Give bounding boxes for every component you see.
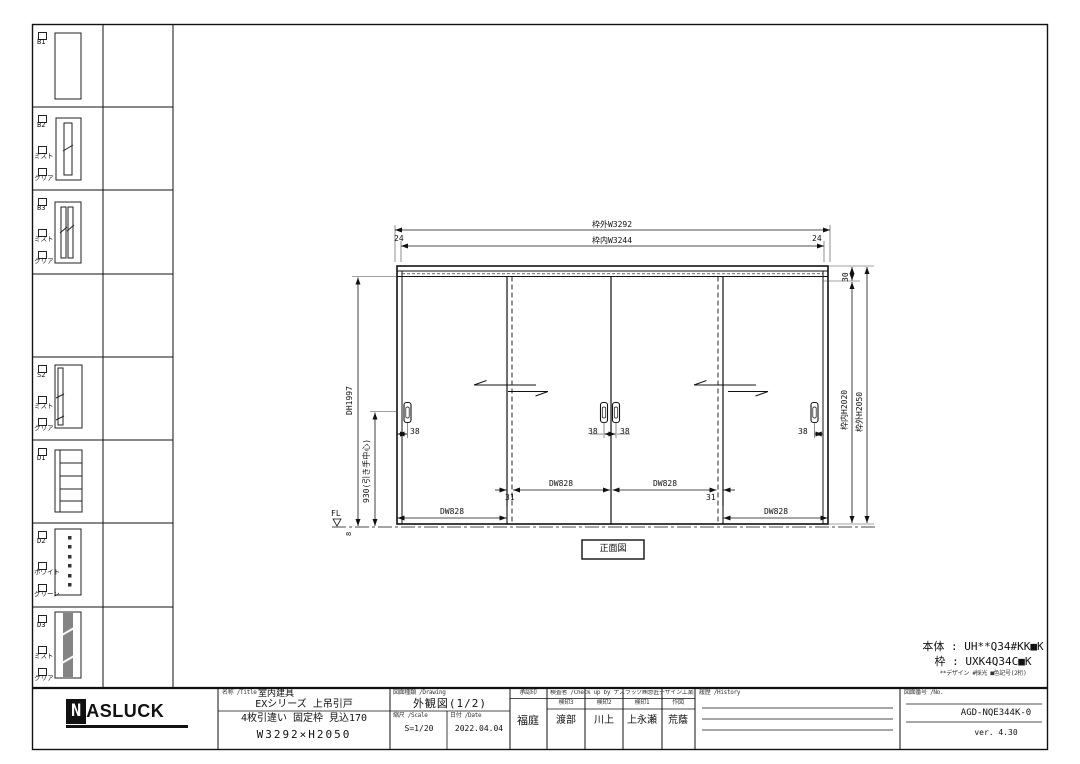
dim-jamb-right: 24: [812, 235, 822, 243]
check-header: 検査者 /Check up by ナスラック㈱意匠デザイン工業部: [550, 690, 694, 696]
drawing-type: 外観図(1/2): [413, 698, 487, 709]
stamp-header: 検印3: [559, 700, 574, 706]
dim-jamb-left: 24: [394, 235, 404, 243]
dim-handle-center-height: 930(引き手中心): [363, 439, 371, 503]
door-type-label-s2: S2: [37, 372, 45, 379]
door-elevation-frame: [397, 266, 828, 524]
dim-frame-outer-width: 枠外W3292: [592, 221, 632, 229]
dim-frame-inner-width: 枠内W3244: [592, 237, 632, 245]
product-size: W3292×H2050: [257, 729, 352, 740]
door-type-label-d1: D1: [37, 455, 45, 462]
view-label: 正面図: [599, 545, 626, 554]
checker-name: 上永瀬: [627, 716, 657, 726]
door-icon-b3: [55, 202, 81, 263]
option-label: クリア: [34, 258, 54, 265]
dim-door-width: DW828: [549, 480, 573, 488]
dim-handle-offset: 38: [798, 428, 808, 436]
dim-overlap: 31: [505, 494, 515, 502]
drawing-linework: [0, 0, 1080, 764]
floor-line: [332, 519, 878, 527]
door-type-icons: [55, 33, 82, 678]
dim-handle-offset: 38: [410, 428, 420, 436]
product-spec: 4枚引違い 固定枠 見込170: [241, 714, 367, 724]
door-icon-s2: [55, 365, 82, 428]
sheet-frame: [32, 24, 1048, 750]
dim-door-width: DW828: [440, 508, 464, 516]
door-icon-b1: [55, 33, 81, 99]
dim-frame-inner-height: 枠内H2020: [841, 390, 849, 430]
door-handle: [811, 403, 818, 423]
dim-frame-outer-height: 枠外H2050: [856, 392, 864, 432]
door-handle: [613, 403, 620, 423]
door-icon-b2: [56, 118, 81, 180]
door-type-label-b3: B3: [37, 205, 45, 212]
door-icon-d3: [55, 612, 81, 678]
scale-header: 縮尺 /Scale: [393, 713, 428, 719]
option-label: ミスト: [34, 153, 54, 160]
note-body-code: 本体 : UH**Q34#KK■K: [922, 641, 1043, 652]
nasluck-logo: NASLUCK: [66, 697, 188, 728]
dim-door-height: DH1997: [346, 386, 354, 415]
door-handle: [601, 403, 608, 423]
checker-name: 渡部: [556, 716, 576, 726]
door-panels: [507, 277, 723, 525]
option-label: ホワイト: [34, 569, 60, 576]
date-header: 日付 /Date: [450, 713, 481, 719]
note-legend: **デザイン #採光 ■色記号(2桁): [940, 671, 1027, 677]
option-label: クリア: [34, 675, 54, 682]
stamp-header: 作図: [672, 700, 683, 706]
dim-overlap: 31: [706, 494, 716, 502]
name-header: 名称 /Title: [222, 690, 257, 696]
stamp-header: 検印2: [597, 700, 612, 706]
dim-door-width: DW828: [764, 508, 788, 516]
checker-name: 川上: [594, 716, 614, 726]
fl-triangle-icon: [333, 519, 341, 526]
drawing-version: ver. 4.30: [974, 729, 1017, 737]
option-label: ミスト: [34, 236, 54, 243]
dim-door-width: DW828: [653, 480, 677, 488]
drawing-sheet: B1 B2 ミスト クリア B3 ミスト クリア S2 ミスト クリア D1 D…: [0, 0, 1080, 764]
dim-handle-offset: 38: [620, 428, 630, 436]
door-type-label-d3: D3: [37, 622, 45, 629]
checker-name: 荒蔭: [668, 716, 688, 726]
dim-head-height: 30: [842, 272, 850, 282]
door-type-label-b1: B1: [37, 39, 45, 46]
dim-handle-offset: 38: [588, 428, 598, 436]
history-header: 履歴 /History: [699, 690, 740, 696]
door-type-label-d2: D2: [37, 538, 45, 545]
option-label: ミスト: [34, 403, 54, 410]
logo-n: N: [66, 699, 86, 724]
product-category: 室内建具: [258, 690, 294, 699]
note-frame-code: 枠 : UXK4Q34C■K: [934, 656, 1031, 667]
drawing-type-header: 図面種類 /Drawing: [393, 690, 446, 696]
dimension-extension-lines: [352, 225, 874, 524]
dim-floor-gap: 8: [346, 532, 353, 536]
drawing-number: AGD-NQE344K-0: [961, 709, 1031, 718]
option-label: ミスト: [34, 653, 54, 660]
slide-direction-arrows: [474, 381, 768, 397]
door-handle: [404, 403, 411, 423]
door-type-label-b2: B2: [37, 122, 45, 129]
approver-name: 福庭: [517, 715, 539, 726]
door-icon-d2: [55, 529, 81, 595]
option-label: クリア: [34, 175, 54, 182]
stamp-header: 検印1: [635, 700, 650, 706]
date-value: 2022.04.04: [455, 725, 503, 733]
floor-line-label: FL: [331, 510, 341, 518]
option-label: グリーン: [34, 591, 60, 598]
number-header: 図面番号 /No.: [904, 690, 943, 696]
approval-header: 承認印: [519, 690, 536, 696]
logo-text: ASLUCK: [86, 701, 164, 722]
door-icon-d1: [55, 450, 82, 512]
option-label: クリア: [34, 425, 54, 432]
scale-value: S=1/20: [405, 725, 434, 733]
dimension-lines: [358, 230, 867, 526]
product-series: EXシリーズ 上吊引戸: [255, 700, 353, 710]
